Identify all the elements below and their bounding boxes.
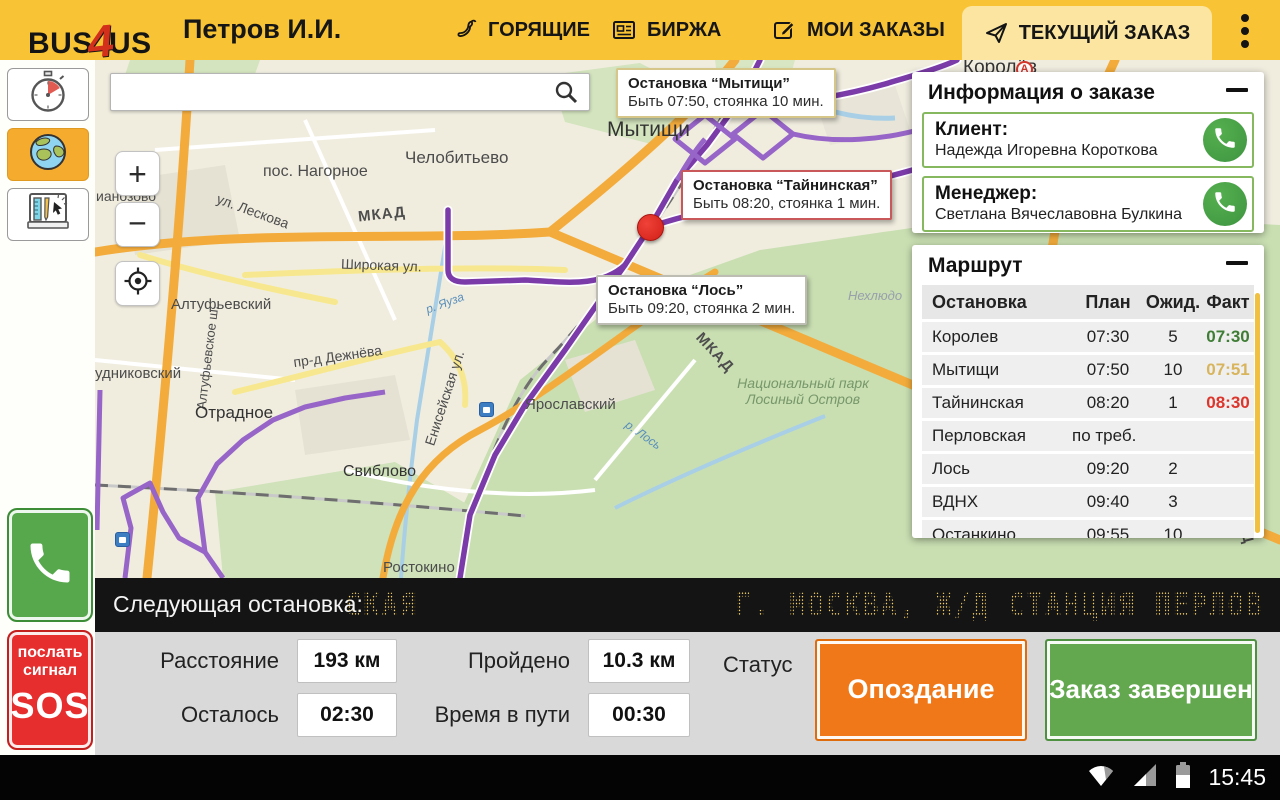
- vehicle-position-marker[interactable]: [637, 214, 664, 241]
- col-fact: Факт: [1202, 292, 1254, 313]
- tab-exchange[interactable]: БИРЖА: [612, 0, 721, 60]
- call-client-button[interactable]: [1203, 118, 1247, 162]
- stop-name: Королев: [932, 327, 1072, 347]
- tab-my-orders[interactable]: МОИ ЗАКАЗЫ: [772, 0, 945, 60]
- ticker-text-right: Г. МОСКВА, Ж/Д СТАНЦИЯ ПЕРЛОВ: [735, 588, 1264, 624]
- tab-label: БИРЖА: [647, 19, 721, 42]
- route-row: Перловскаяпо треб.: [922, 421, 1254, 451]
- stop-callout-mytishchi[interactable]: Остановка “Мытищи” Быть 07:50, стоянка 1…: [616, 68, 836, 118]
- stop-callout-tayninskaya[interactable]: Остановка “Тайнинская” Быть 08:20, стоян…: [681, 170, 892, 220]
- plan-time: 08:20: [1072, 393, 1144, 413]
- sos-label: SOS: [9, 685, 91, 727]
- stop-name: Мытищи: [932, 360, 1072, 380]
- manager-contact-card: Менеджер: Светлана Вячеславовна Булкина: [922, 176, 1254, 232]
- battery-icon: [1175, 761, 1191, 794]
- wait-min: 10: [1144, 525, 1202, 538]
- rail-station-icon: [479, 402, 494, 417]
- route-row: ВДНХ09:403: [922, 487, 1254, 517]
- contact-name: Светлана Вячеславовна Булкина: [935, 206, 1194, 224]
- zoom-out-button[interactable]: −: [115, 202, 160, 247]
- map-label: Нехлюдо: [848, 288, 902, 303]
- newspaper-icon: [612, 18, 638, 42]
- remaining-value: 02:30: [297, 693, 397, 737]
- search-icon[interactable]: [553, 79, 579, 105]
- wait-min: 1: [1144, 393, 1202, 413]
- stop-name: Тайнинская: [932, 393, 1072, 413]
- map-mode-button[interactable]: [7, 128, 89, 181]
- status-label: Статус: [723, 652, 813, 678]
- callout-title: Остановка “Мытищи”: [628, 75, 824, 92]
- edit-note-icon: [772, 18, 798, 42]
- clock-text: 15:45: [1208, 764, 1266, 791]
- route-row: Лось09:202: [922, 454, 1254, 484]
- route-scrollbar[interactable]: [1255, 293, 1260, 533]
- zoom-in-button[interactable]: +: [115, 151, 160, 196]
- route-table-header: Остановка План Ожид. Факт: [922, 285, 1254, 319]
- app-logo: BUS4US: [28, 10, 152, 64]
- client-contact-card: Клиент: Надежда Игоревна Короткова: [922, 112, 1254, 168]
- android-status-bar: 15:45: [0, 755, 1280, 800]
- stopwatch-icon: [27, 70, 69, 119]
- route-row: Останкино09:5510: [922, 520, 1254, 538]
- route-row: Мытищи07:501007:51: [922, 355, 1254, 385]
- paper-plane-icon: [984, 20, 1010, 46]
- tab-hot-orders[interactable]: ГОРЯЩИЕ: [455, 0, 590, 60]
- fact-time: 08:30: [1202, 393, 1254, 413]
- measure-tools-button[interactable]: [7, 188, 89, 241]
- callout-title: Остановка “Тайнинская”: [693, 177, 880, 194]
- panel-title: Маршрут: [928, 254, 1023, 277]
- map-search-box: [110, 73, 590, 111]
- stop-name: ВДНХ: [932, 492, 1072, 512]
- stop-name: Останкино: [932, 525, 1072, 538]
- order-info-panel: Информация о заказе Клиент: Надежда Игор…: [912, 72, 1264, 233]
- next-stop-ticker: Следующая остановка: СКАЯ Г. МОСКВА, Ж/Д…: [95, 578, 1280, 632]
- map-label-city: Мытищи: [607, 118, 690, 142]
- traveled-label: Пройдено: [425, 648, 570, 674]
- phone-icon: [1212, 189, 1238, 220]
- distance-label: Расстояние: [131, 648, 279, 674]
- sos-label: сигнал: [9, 662, 91, 680]
- map-label: Ярославский: [525, 396, 616, 413]
- app-root: BUS4US Петров И.И. ГОРЯЩИЕ БИРЖА МОИ ЗАК…: [0, 0, 1280, 800]
- fact-time: 07:51: [1202, 360, 1254, 380]
- left-sidebar: послать сигнал SOS: [0, 60, 95, 755]
- map-label: Свиблово: [343, 463, 416, 481]
- col-wait: Ожид.: [1144, 292, 1202, 313]
- timer-mode-button[interactable]: [7, 68, 89, 121]
- call-dispatcher-button[interactable]: [7, 508, 93, 622]
- stop-callout-los[interactable]: Остановка “Лось” Быть 09:20, стоянка 2 м…: [596, 275, 807, 325]
- map-label: Отрадное: [195, 403, 273, 423]
- cell-signal-icon: [1132, 762, 1158, 793]
- callout-title: Остановка “Лось”: [608, 282, 795, 299]
- wait-min: 2: [1144, 459, 1202, 479]
- map-label: Челобитьево: [405, 148, 508, 168]
- wait-min: 10: [1144, 360, 1202, 380]
- route-row: Тайнинская08:20108:30: [922, 388, 1254, 418]
- collapse-icon[interactable]: [1226, 88, 1248, 92]
- panel-title: Информация о заказе: [928, 81, 1155, 104]
- driver-name: Петров И.И.: [183, 14, 341, 45]
- globe-icon: [26, 130, 70, 179]
- contact-name: Надежда Игоревна Короткова: [935, 142, 1194, 160]
- callout-line: Быть 07:50, стоянка 10 мин.: [628, 93, 824, 110]
- col-plan: План: [1072, 292, 1144, 313]
- map-label: Ростокино: [383, 559, 455, 576]
- plan-time: 09:20: [1072, 459, 1144, 479]
- my-location-button[interactable]: [115, 261, 160, 306]
- rail-station-icon: [115, 532, 130, 547]
- traveled-value: 10.3 км: [588, 639, 690, 683]
- stop-name: Перловская: [932, 426, 1072, 446]
- overflow-menu-button[interactable]: [1232, 12, 1258, 50]
- distance-value: 193 км: [297, 639, 397, 683]
- plan-time: по треб.: [1072, 426, 1144, 446]
- tab-current-order[interactable]: ТЕКУЩИЙ ЗАКАЗ: [962, 6, 1212, 60]
- col-stop: Остановка: [932, 292, 1072, 313]
- callout-line: Быть 09:20, стоянка 2 мин.: [608, 300, 795, 317]
- panel-header: Информация о заказе: [912, 72, 1264, 112]
- entime-value: 00:30: [588, 693, 690, 737]
- route-row: Королев07:30507:30: [922, 322, 1254, 352]
- wait-min: 5: [1144, 327, 1202, 347]
- map-label: пос. Нагорное: [263, 163, 368, 181]
- remaining-label: Осталось: [131, 702, 279, 728]
- call-manager-button[interactable]: [1203, 182, 1247, 226]
- wifi-icon: [1087, 762, 1115, 793]
- map-label-road: Широкая ул.: [341, 256, 422, 275]
- sos-label: послать: [9, 644, 91, 662]
- ticker-text-left: СКАЯ: [345, 588, 418, 624]
- map-label-park: Национальный парк Лосиный Остров: [723, 375, 883, 407]
- sos-button[interactable]: послать сигнал SOS: [7, 630, 93, 750]
- order-complete-button[interactable]: Заказ завершен: [1045, 639, 1257, 741]
- route-panel: Маршрут Остановка План Ожид. Факт Короле…: [912, 245, 1264, 538]
- header-bar: BUS4US Петров И.И. ГОРЯЩИЕ БИРЖА МОИ ЗАК…: [0, 0, 1280, 60]
- ruler-pencil-cursor-icon: [24, 190, 72, 239]
- entime-label: Время в пути: [395, 702, 570, 728]
- pepper-icon: [455, 18, 479, 42]
- stop-name: Лось: [932, 459, 1072, 479]
- phone-icon: [24, 537, 76, 594]
- fact-time: 07:30: [1202, 327, 1254, 347]
- late-status-button[interactable]: Опоздание: [815, 639, 1027, 741]
- location-target-icon: [123, 266, 153, 301]
- contact-role: Клиент:: [935, 119, 1194, 141]
- minus-icon: −: [128, 207, 147, 239]
- route-table: Остановка План Ожид. Факт Королев07:3050…: [922, 285, 1254, 538]
- plan-time: 09:55: [1072, 525, 1144, 538]
- wait-min: 3: [1144, 492, 1202, 512]
- map-search-input[interactable]: [111, 74, 553, 110]
- callout-line: Быть 08:20, стоянка 1 мин.: [693, 195, 880, 212]
- trip-stats-panel: Расстояние 193 км Осталось 02:30 Пройден…: [95, 632, 1280, 755]
- tab-label: МОИ ЗАКАЗЫ: [807, 19, 945, 42]
- plan-time: 07:30: [1072, 327, 1144, 347]
- plus-icon: +: [128, 158, 147, 190]
- phone-icon: [1212, 125, 1238, 156]
- panel-header: Маршрут: [912, 245, 1264, 285]
- plan-time: 07:50: [1072, 360, 1144, 380]
- map-label: удниковский: [95, 365, 181, 382]
- map-label: Алтуфьевский: [171, 296, 271, 313]
- collapse-icon[interactable]: [1226, 261, 1248, 265]
- next-stop-label: Следующая остановка:: [113, 591, 363, 618]
- tab-label: ТЕКУЩИЙ ЗАКАЗ: [1019, 22, 1191, 45]
- plan-time: 09:40: [1072, 492, 1144, 512]
- tab-label: ГОРЯЩИЕ: [488, 19, 590, 42]
- contact-role: Менеджер:: [935, 183, 1194, 205]
